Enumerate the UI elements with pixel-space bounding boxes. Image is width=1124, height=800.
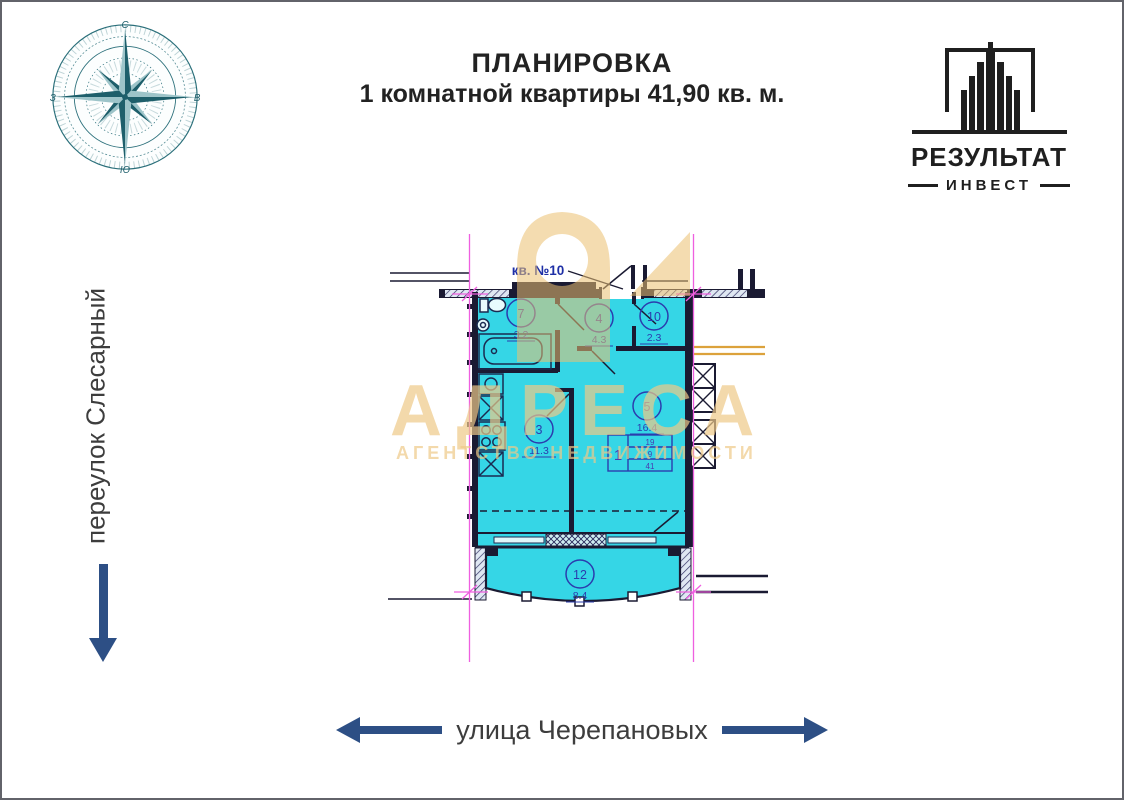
svg-text:2.3: 2.3 [647, 332, 662, 344]
svg-text:кв. №10: кв. №10 [512, 263, 565, 278]
title-line1: ПЛАНИРОВКА [272, 48, 872, 80]
brand-name: РЕЗУЛЬТАТ [884, 142, 1094, 173]
flyer-page: С Ю З В ПЛАНИРОВКА 1 комнатной квартиры … [0, 0, 1124, 800]
compass-rose: С Ю З В [47, 19, 203, 175]
svg-text:1: 1 [614, 447, 622, 464]
brand-dash-right [1040, 184, 1070, 187]
compass-west-letter: З [50, 93, 56, 104]
arrow-right-icon [722, 717, 828, 743]
svg-text:4.3: 4.3 [592, 334, 607, 346]
arrow-down-icon [88, 564, 118, 664]
brand-dash-left [908, 184, 938, 187]
floor-plan: кв. №10 7 3.2 4 4.3 10 2.3 3 11.3 [380, 227, 780, 672]
svg-text:12: 12 [573, 568, 587, 582]
svg-text:16.4: 16.4 [637, 422, 658, 434]
title-line2: 1 комнатной квартиры 41,90 кв. м. [272, 80, 872, 110]
compass-south-letter: Ю [120, 165, 130, 175]
arrow-left-icon [336, 717, 442, 743]
svg-text:10: 10 [647, 310, 661, 324]
utility-lines [693, 347, 765, 354]
toilet-icon [480, 299, 506, 313]
svg-text:8.4: 8.4 [573, 590, 588, 602]
brand-logo: РЕЗУЛЬТАТ ИНВЕСТ [884, 30, 1094, 194]
svg-text:9: 9 [648, 450, 653, 459]
building-icon [887, 30, 1092, 136]
brand-subname-row: ИНВЕСТ [884, 177, 1094, 194]
vent-shafts [691, 364, 715, 468]
brand-subname: ИНВЕСТ [946, 177, 1032, 194]
svg-text:19: 19 [646, 438, 655, 447]
sink-icon [477, 319, 489, 331]
page-title: ПЛАНИРОВКА 1 комнатной квартиры 41,90 кв… [272, 48, 872, 109]
svg-text:11.3: 11.3 [529, 445, 549, 457]
svg-text:4: 4 [596, 312, 603, 326]
svg-text:41: 41 [646, 462, 655, 471]
svg-text:5: 5 [644, 400, 651, 414]
street-label-left: переулок Слесарный [74, 270, 118, 562]
svg-text:3: 3 [536, 423, 543, 437]
svg-text:7: 7 [518, 307, 525, 321]
street-label-bottom: улица Черепановых [456, 715, 708, 746]
svg-text:3.2: 3.2 [514, 329, 529, 341]
compass-north-letter: С [121, 20, 129, 31]
compass-east-letter: В [194, 93, 201, 104]
street-label-bottom-row: улица Черепановых [340, 712, 824, 748]
